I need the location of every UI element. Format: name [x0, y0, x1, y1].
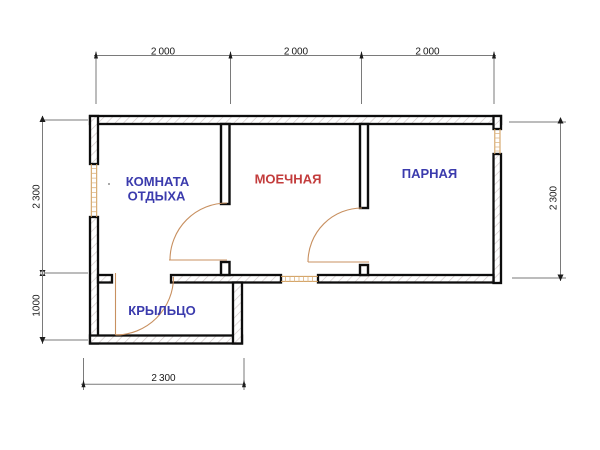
- svg-text:МОЕЧНАЯ: МОЕЧНАЯ: [255, 171, 322, 186]
- svg-text:КРЫЛЬЦО: КРЫЛЬЦО: [128, 303, 195, 318]
- svg-text:1000: 1000: [32, 294, 43, 317]
- svg-text:КОМНАТА: КОМНАТА: [126, 174, 190, 189]
- svg-text:2 300: 2 300: [151, 373, 176, 384]
- svg-text:ПАРНАЯ: ПАРНАЯ: [402, 166, 458, 181]
- svg-text:2 300: 2 300: [32, 184, 43, 209]
- svg-text:2 000: 2 000: [284, 47, 309, 58]
- svg-text:ОТДЫХА: ОТДЫХА: [128, 188, 186, 203]
- svg-text:2 000: 2 000: [151, 47, 176, 58]
- svg-text:2 300: 2 300: [549, 185, 560, 210]
- svg-text:2 000: 2 000: [415, 47, 440, 58]
